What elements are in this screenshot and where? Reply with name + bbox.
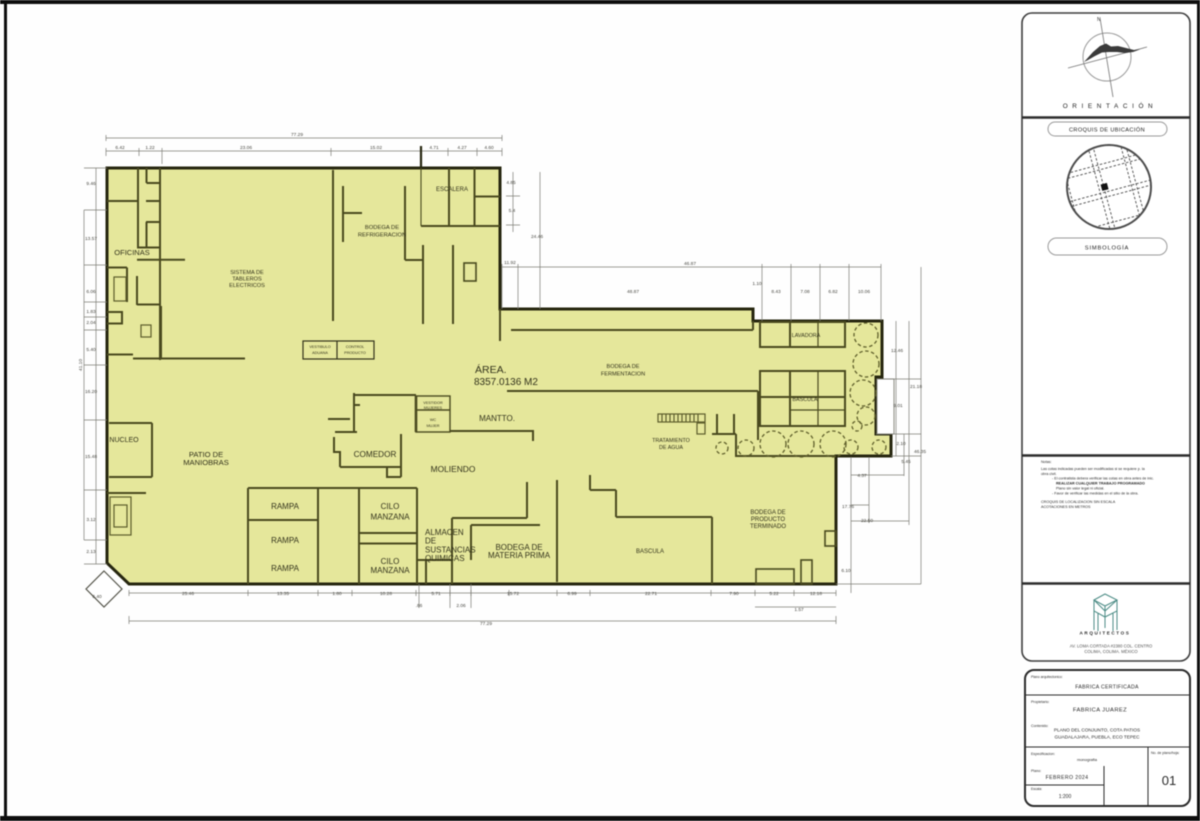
svg-text:LAVADORA: LAVADORA [792,333,821,339]
svg-text:MANTTO.: MANTTO. [479,414,515,423]
svg-text:5.4: 5.4 [509,208,516,214]
svg-text:1.83: 1.83 [86,309,96,315]
svg-text:17.76: 17.76 [842,504,854,510]
svg-text:MANZANA: MANZANA [370,513,410,522]
svg-text:FEBRERO 2024: FEBRERO 2024 [1046,775,1089,781]
svg-text:FABRICA JUAREZ: FABRICA JUAREZ [1073,708,1127,714]
svg-text:22.71: 22.71 [645,591,657,597]
svg-text:SIMBOLOGÍA: SIMBOLOGÍA [1085,245,1129,252]
svg-text:MATERIA PRIMA: MATERIA PRIMA [488,551,551,560]
svg-text:8357.0136 M2: 8357.0136 M2 [474,377,538,388]
svg-text:CONTROL: CONTROL [346,345,365,349]
svg-text:4.60: 4.60 [484,145,494,151]
svg-text:13.57: 13.57 [85,236,97,242]
svg-text:1.80: 1.80 [332,591,342,597]
svg-text:BODEGA DE: BODEGA DE [607,364,640,370]
svg-text:CROQUIS DE UBICACIÓN: CROQUIS DE UBICACIÓN [1069,127,1145,134]
svg-text:RAMPA: RAMPA [271,564,300,573]
svg-text:22.50: 22.50 [861,518,873,524]
svg-text:ÁREA.: ÁREA. [475,363,507,376]
svg-text:ADUANA: ADUANA [312,351,328,355]
svg-text:6.40: 6.40 [92,594,102,600]
svg-text:41.10: 41.10 [78,359,84,371]
svg-text:2.06: 2.06 [456,603,466,609]
svg-text:Escala:: Escala: [1031,787,1042,791]
svg-text:COMEDOR: COMEDOR [354,450,397,459]
svg-text:15.48: 15.48 [85,454,97,460]
svg-text:BODEGA DE: BODEGA DE [750,510,785,516]
svg-text:DE: DE [425,537,436,546]
svg-text:VESTIDOR: VESTIDOR [423,401,443,405]
svg-text:SISTEMA DE: SISTEMA DE [230,270,264,276]
svg-text:5.22: 5.22 [769,591,779,597]
svg-text:11.92: 11.92 [504,260,516,266]
svg-text:7.08: 7.08 [800,289,810,295]
svg-text:5.40: 5.40 [86,347,96,353]
svg-text:4.85: 4.85 [506,180,516,186]
svg-text:46.35: 46.35 [914,449,926,455]
svg-text:BODEGA DE: BODEGA DE [365,225,399,231]
svg-text:2.04: 2.04 [86,320,96,326]
svg-text:15.72: 15.72 [507,591,519,597]
svg-text:TERMINADO: TERMINADO [750,524,786,530]
svg-text:- El contratista debera veri: - El contratista debera verificar las co… [1052,477,1154,481]
svg-text:23.06: 23.06 [240,145,252,151]
svg-text:13.35: 13.35 [277,591,289,597]
svg-text:REFRIGERACION: REFRIGERACION [358,233,406,239]
svg-text:16.20: 16.20 [85,389,97,395]
svg-text:PRODUCTO: PRODUCTO [344,351,366,355]
svg-text:TRATAMIENTO: TRATAMIENTO [652,438,690,444]
svg-text:25.46: 25.46 [182,591,194,597]
svg-text:ORIENTACIÓN: ORIENTACIÓN [1063,101,1158,110]
svg-text:MANZANA: MANZANA [370,566,410,575]
svg-text:RAMPA: RAMPA [271,502,300,511]
svg-text:6.99: 6.99 [567,591,577,597]
svg-text:ARQUITECTOS: ARQUITECTOS [1080,631,1131,636]
svg-text:4.37: 4.37 [857,473,867,479]
svg-text:FERMENTACION: FERMENTACION [601,372,645,378]
svg-text:.86: .86 [416,603,423,609]
svg-text:6.10: 6.10 [841,568,851,574]
svg-text:ESCALERA: ESCALERA [436,187,468,193]
svg-text:DE AGUA: DE AGUA [659,445,683,451]
svg-text:Propietario:: Propietario: [1031,700,1049,704]
svg-text:BASCULA: BASCULA [636,549,664,555]
svg-text:6.42: 6.42 [115,145,125,151]
svg-text:Las cotas indicadas pueden ser: Las cotas indicadas pueden ser modificad… [1041,467,1146,471]
svg-text:12.18: 12.18 [810,591,822,597]
svg-text:ELECTRICOS: ELECTRICOS [229,283,265,289]
svg-text:REALIZAR CUALQUIER TRABAJO PRO: REALIZAR CUALQUIER TRABAJO PROGRAMADO [1056,482,1145,486]
svg-text:46.87: 46.87 [684,261,696,267]
svg-text:2.10: 2.10 [896,441,906,447]
svg-text:4.71: 4.71 [429,145,439,151]
svg-text:monografia: monografia [1077,757,1098,762]
svg-text:77.29: 77.29 [480,621,492,627]
svg-text:1.57: 1.57 [794,607,804,613]
svg-text:10.06: 10.06 [858,289,870,295]
svg-text:obra civil.: obra civil. [1041,472,1057,476]
svg-text:7.90: 7.90 [729,591,739,597]
svg-text:MUJERES: MUJERES [424,406,443,410]
svg-text:5.45: 5.45 [901,459,911,465]
svg-text:WC: WC [430,418,437,422]
svg-text:9.46: 9.46 [86,181,96,187]
svg-text:GUADALAJARA, PUEBLA, ECO TEPEC: GUADALAJARA, PUEBLA, ECO TEPEC [1054,735,1140,740]
svg-text:NUCLEO: NUCLEO [109,437,139,444]
svg-text:PRODUCTO: PRODUCTO [751,517,786,523]
svg-text:Notas:: Notas: [1041,460,1052,464]
svg-text:24.46: 24.46 [531,234,543,240]
svg-text:01: 01 [1162,773,1176,788]
svg-text:CILO: CILO [381,502,400,511]
svg-text:21.18: 21.18 [910,384,922,390]
svg-text:RAMPA: RAMPA [271,536,300,545]
svg-text:Contenido:: Contenido: [1031,724,1048,728]
svg-text:4.27: 4.27 [457,145,467,151]
svg-text:TABLEROS: TABLEROS [232,277,262,283]
svg-text:Especificacion:: Especificacion: [1031,752,1055,756]
svg-text:PLANO DEL CONJUNTO, COTA PATIO: PLANO DEL CONJUNTO, COTA PATIOS [1054,728,1140,733]
svg-text:3.12: 3.12 [86,517,96,523]
svg-text:8.43: 8.43 [771,289,781,295]
svg-text:No. de plano/hoja:: No. de plano/hoja: [1151,751,1179,755]
svg-text:6.82: 6.82 [828,289,838,295]
svg-text:BASCULA: BASCULA [792,397,818,403]
svg-text:CILO: CILO [381,557,400,566]
svg-text:1.22: 1.22 [145,145,155,151]
svg-text:VESTIBULO: VESTIBULO [309,345,330,349]
svg-text:9.01: 9.01 [893,403,903,409]
svg-text:1:200: 1:200 [1059,794,1072,800]
svg-text:6.06: 6.06 [86,289,96,295]
svg-text:FABRICA CERTIFICADA: FABRICA CERTIFICADA [1075,685,1139,691]
svg-text:QUIMICAS: QUIMICAS [425,554,465,563]
svg-text:77.29: 77.29 [291,132,303,138]
svg-text:COLIMA, COLIMA. MÉXICO: COLIMA, COLIMA. MÉXICO [1084,649,1138,654]
svg-text:5.71: 5.71 [431,591,441,597]
svg-text:10.28: 10.28 [380,591,392,597]
svg-text:MUJER: MUJER [426,424,439,428]
svg-text:MANIOBRAS: MANIOBRAS [183,458,229,467]
svg-text:Plano:: Plano: [1031,769,1041,773]
svg-text:MOLIENDO: MOLIENDO [431,464,476,474]
svg-text:AV. LOMA CORTADA #2380 COL. CE: AV. LOMA CORTADA #2380 COL. CENTRO [1070,644,1153,649]
svg-text:12.46: 12.46 [891,348,903,354]
svg-text:48.87: 48.87 [627,289,639,295]
svg-text:15.02: 15.02 [370,145,382,151]
svg-text:CROQUIS DE LOCALIZACION SIN ES: CROQUIS DE LOCALIZACION SIN ESCALA [1041,500,1116,504]
svg-text:OFICINAS: OFICINAS [114,248,149,257]
svg-text:1.10: 1.10 [752,281,762,287]
svg-text:Plano arquitectonico:: Plano arquitectonico: [1031,675,1063,679]
svg-text:2.13: 2.13 [86,549,96,555]
svg-text:ACOTACIONES EN METROS: ACOTACIONES EN METROS [1041,505,1091,509]
svg-text:Plano sin valor legal ni ofici: Plano sin valor legal ni oficial. [1056,487,1104,491]
svg-text:- Favor de verificar las med: - Favor de verificar las medidas en el s… [1052,492,1139,496]
